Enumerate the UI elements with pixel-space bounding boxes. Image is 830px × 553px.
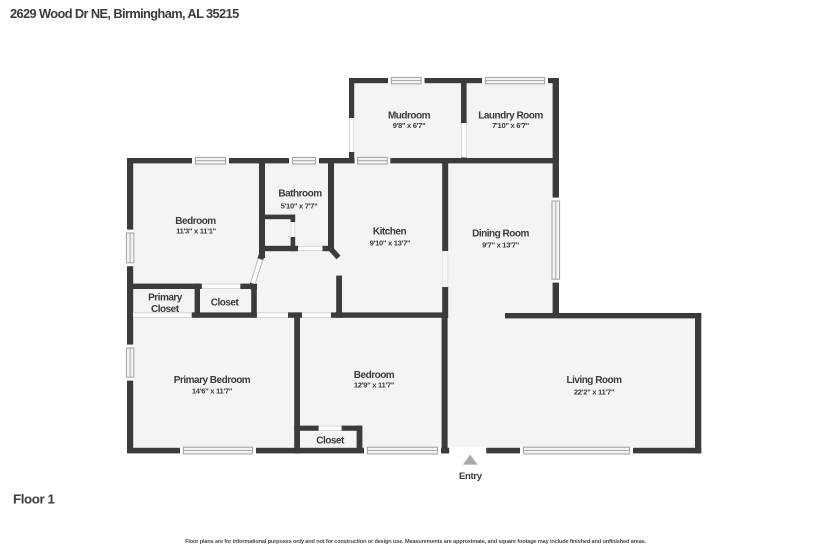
- svg-text:Bedroom: Bedroom: [354, 370, 395, 381]
- svg-text:Primary: Primary: [148, 292, 183, 303]
- svg-text:Floor plans are for informatio: Floor plans are for informational purpos…: [185, 539, 646, 545]
- svg-text:Floor 1: Floor 1: [13, 491, 56, 506]
- svg-text:5'10" x 7'7": 5'10" x 7'7": [281, 201, 318, 210]
- svg-text:12'9" x 11'7": 12'9" x 11'7": [354, 381, 395, 390]
- svg-text:2629 Wood Dr NE, Birmingham, A: 2629 Wood Dr NE, Birmingham, AL 35215: [10, 6, 239, 21]
- svg-text:Living Room: Living Room: [566, 375, 622, 386]
- svg-text:14'6" x 11'7": 14'6" x 11'7": [192, 386, 233, 395]
- svg-text:22'2" x 11'7": 22'2" x 11'7": [574, 387, 615, 396]
- svg-text:Entry: Entry: [459, 471, 483, 482]
- svg-text:11'3" x 11'1": 11'3" x 11'1": [176, 227, 217, 236]
- svg-text:Bedroom: Bedroom: [175, 216, 216, 227]
- svg-text:Closet: Closet: [316, 435, 345, 446]
- svg-text:Bathroom: Bathroom: [278, 189, 322, 200]
- svg-text:9'10" x 13'7": 9'10" x 13'7": [370, 238, 411, 247]
- svg-text:9'7" x 13'7": 9'7" x 13'7": [482, 240, 519, 249]
- svg-text:Mudroom: Mudroom: [388, 111, 431, 122]
- svg-text:Laundry Room: Laundry Room: [478, 111, 543, 122]
- svg-text:Closet: Closet: [211, 297, 240, 308]
- svg-text:7'10" x 6'7": 7'10" x 6'7": [492, 121, 529, 130]
- svg-text:Kitchen: Kitchen: [373, 227, 407, 238]
- svg-text:9'8" x 6'7": 9'8" x 6'7": [393, 121, 427, 130]
- svg-text:Primary Bedroom: Primary Bedroom: [174, 375, 251, 386]
- svg-text:Dining Room: Dining Room: [472, 229, 529, 240]
- svg-text:Closet: Closet: [151, 304, 180, 315]
